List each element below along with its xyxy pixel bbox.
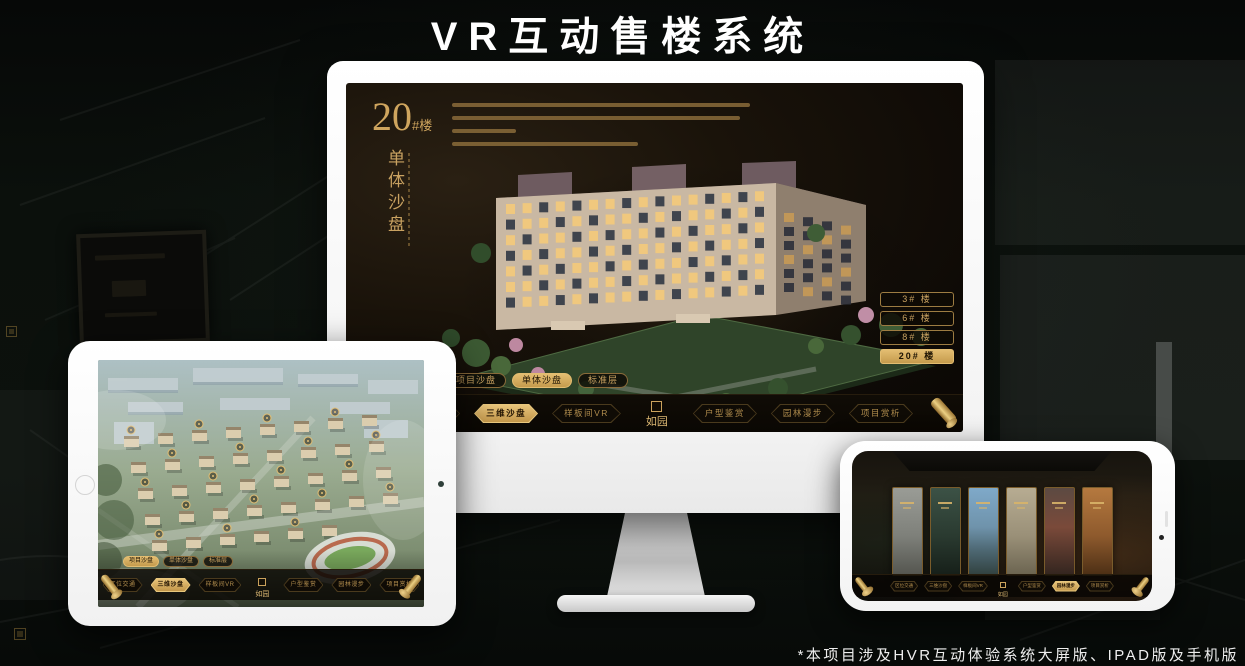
ipad-navbar: 区位交通 三维沙盘 样板间VR 如园 户型鉴赏 园林漫步 项目赏析 [98, 569, 424, 600]
nav-item-garden-walk[interactable]: 园林漫步 [331, 578, 371, 592]
ipad-home-button [75, 475, 95, 495]
floor-button-8[interactable]: 8# 楼 [880, 330, 954, 345]
nav-item-garden-walk-active[interactable]: 园林漫步 [1052, 581, 1080, 592]
ipad-tab-row: 项目沙盘 单体沙盘 标准层 [123, 556, 233, 567]
floor-button-6[interactable]: 6# 楼 [880, 311, 954, 326]
scene-gallery [852, 487, 1152, 576]
phone-device: 区位交通 三维沙盘 样板间VR 如园 户型鉴赏 园林漫步 项目赏析 [840, 441, 1175, 611]
brand-logo: 如园 [249, 573, 275, 598]
seal-icon [651, 401, 662, 412]
nav-item-floorplans[interactable]: 户型鉴赏 [283, 578, 323, 592]
tab-project-sandtable-active[interactable]: 项目沙盘 [123, 556, 159, 567]
nav-item-3d-sandtable-active[interactable]: 三维沙盘 [474, 404, 538, 423]
gallery-panel[interactable] [1044, 487, 1075, 576]
nav-item-project-review[interactable]: 项目赏析 [849, 404, 913, 423]
nav-item-garden-walk[interactable]: 园林漫步 [771, 404, 835, 423]
gallery-panel[interactable] [892, 487, 923, 576]
floor-button-20-active[interactable]: 20# 楼 [880, 349, 954, 364]
nav-item-3d-sandtable[interactable]: 三维沙盘 [924, 581, 952, 592]
monitor-tab-row: 项目沙盘 单体沙盘 标准层 [446, 373, 628, 388]
tab-standard-floor[interactable]: 标准层 [203, 556, 233, 567]
brand-logo: 如园 [994, 575, 1012, 598]
nav-item-floorplans[interactable]: 户型鉴赏 [1018, 581, 1046, 592]
footnote-text: *本项目涉及HVR互动体验系统大屏版、IPAD版及手机版 [798, 644, 1239, 665]
floor-button-group: 3# 楼 6# 楼 8# 楼 20# 楼 [880, 292, 954, 368]
gallery-panel[interactable] [930, 487, 961, 576]
phone-navbar: 区位交通 三维沙盘 样板间VR 如园 户型鉴赏 园林漫步 项目赏析 [852, 574, 1152, 597]
phone-speaker-icon [1165, 511, 1168, 527]
gallery-panel[interactable] [1082, 487, 1113, 576]
background-gold-logo-bottom [14, 628, 26, 640]
tab-standard-floor[interactable]: 标准层 [578, 373, 628, 388]
tab-single-sandtable-active[interactable]: 单体沙盘 [512, 373, 572, 388]
nav-item-model-room-vr[interactable]: 样板间VR [552, 404, 621, 423]
poster-stage: VR互动售楼系统 20#楼 单体沙盘 [0, 0, 1245, 666]
tab-single-sandtable[interactable]: 单体沙盘 [163, 556, 199, 567]
gallery-panel[interactable] [1006, 487, 1037, 576]
nav-item-model-room-vr[interactable]: 样板间VR [199, 578, 242, 592]
floor-button-3[interactable]: 3# 楼 [880, 292, 954, 307]
gate-beam-silhouette [892, 451, 1112, 471]
phone-camera-icon [1159, 535, 1164, 540]
ipad-screen: 项目沙盘 单体沙盘 标准层 区位交通 三维沙盘 样板间VR 如园 户型鉴赏 园林… [98, 360, 424, 607]
monitor-base [557, 595, 755, 612]
gallery-panel[interactable] [968, 487, 999, 576]
ipad-device: 项目沙盘 单体沙盘 标准层 区位交通 三维沙盘 样板间VR 如园 户型鉴赏 园林… [68, 341, 456, 626]
nav-item-project-review[interactable]: 项目赏析 [1086, 581, 1114, 592]
phone-screen: 区位交通 三维沙盘 样板间VR 如园 户型鉴赏 园林漫步 项目赏析 [852, 451, 1152, 601]
nav-item-floorplans[interactable]: 户型鉴赏 [693, 404, 757, 423]
background-gold-logo-left [6, 326, 17, 337]
background-framed-plaque [76, 230, 210, 346]
nav-item-model-room-vr[interactable]: 样板间VR [958, 581, 988, 592]
ipad-camera-icon [438, 481, 444, 487]
page-title: VR互动售楼系统 [0, 4, 1245, 62]
seal-icon [258, 578, 266, 586]
brand-logo: 如园 [635, 399, 679, 428]
nav-item-location[interactable]: 区位交通 [890, 581, 918, 592]
seal-icon [1000, 582, 1006, 588]
nav-item-3d-sandtable-active[interactable]: 三维沙盘 [151, 578, 191, 592]
